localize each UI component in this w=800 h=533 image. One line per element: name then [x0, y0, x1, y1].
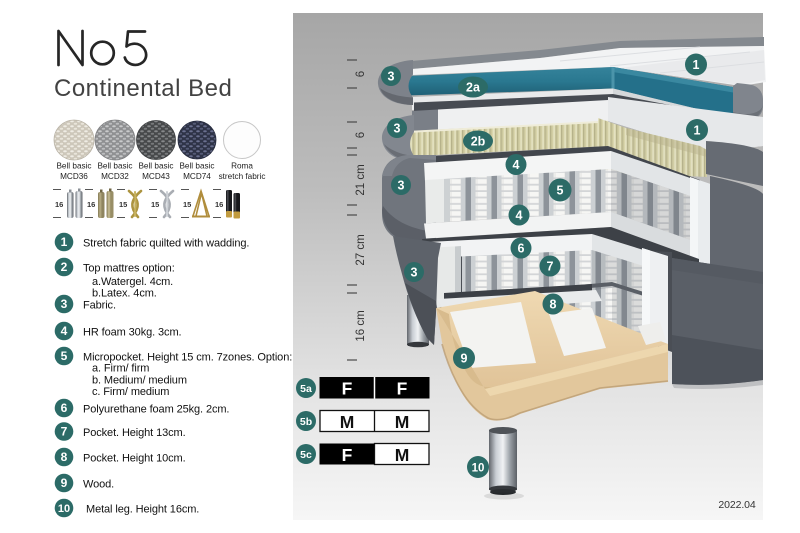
svg-text:2: 2 [61, 260, 68, 274]
svg-text:a.Watergel. 4cm.: a.Watergel. 4cm. [92, 276, 173, 288]
svg-text:5c: 5c [300, 449, 312, 461]
svg-text:5: 5 [61, 349, 68, 363]
svg-text:5b: 5b [300, 416, 312, 428]
svg-text:6: 6 [355, 132, 367, 138]
svg-text:2b: 2b [471, 135, 486, 149]
svg-text:1: 1 [694, 124, 701, 138]
svg-text:1: 1 [61, 235, 68, 249]
svg-text:M: M [340, 412, 355, 432]
svg-text:3: 3 [388, 70, 395, 84]
svg-text:Fabric.: Fabric. [83, 300, 116, 312]
svg-text:Bell basic: Bell basic [97, 162, 132, 171]
svg-text:7: 7 [547, 260, 554, 274]
svg-text:16: 16 [87, 200, 95, 209]
svg-text:F: F [342, 445, 353, 465]
svg-text:HR foam 30kg. 3cm.: HR foam 30kg. 3cm. [83, 327, 182, 339]
svg-text:7: 7 [61, 425, 68, 439]
svg-text:stretch fabric: stretch fabric [219, 172, 266, 181]
svg-text:21 cm: 21 cm [355, 164, 367, 195]
svg-text:Top mattres option:: Top mattres option: [83, 263, 175, 275]
svg-text:27 cm: 27 cm [355, 234, 367, 265]
svg-text:MCD74: MCD74 [183, 172, 211, 181]
svg-text:15: 15 [119, 200, 127, 209]
svg-text:a. Firm/ firm: a. Firm/ firm [92, 363, 149, 375]
svg-text:b. Medium/ medium: b. Medium/ medium [92, 375, 187, 387]
svg-text:MCD32: MCD32 [101, 172, 129, 181]
svg-text:M: M [395, 445, 410, 465]
svg-text:2a: 2a [466, 81, 481, 95]
svg-text:10: 10 [58, 503, 70, 515]
svg-text:3: 3 [61, 297, 68, 311]
svg-text:3: 3 [398, 179, 405, 193]
svg-text:Metal leg. Height 16cm.: Metal leg. Height 16cm. [86, 504, 199, 516]
svg-text:15: 15 [151, 200, 159, 209]
svg-text:15: 15 [183, 200, 191, 209]
svg-text:3: 3 [411, 266, 418, 280]
svg-text:2022.04: 2022.04 [718, 499, 756, 511]
svg-text:Polyurethane foam 25kg. 2cm.: Polyurethane foam 25kg. 2cm. [83, 404, 229, 416]
svg-text:F: F [342, 379, 353, 399]
svg-text:M: M [395, 412, 410, 432]
svg-text:b.Latex. 4cm.: b.Latex. 4cm. [92, 288, 157, 300]
svg-text:Pocket. Height 10cm.: Pocket. Height 10cm. [83, 453, 186, 465]
svg-text:6: 6 [355, 71, 367, 77]
svg-text:MCD43: MCD43 [142, 172, 170, 181]
svg-text:16: 16 [215, 200, 223, 209]
svg-text:16: 16 [55, 200, 63, 209]
svg-text:Roma: Roma [231, 162, 253, 171]
svg-text:5: 5 [557, 184, 564, 198]
svg-text:c. Firm/ medium: c. Firm/ medium [92, 386, 169, 398]
svg-text:4: 4 [61, 324, 68, 338]
svg-text:Stretch fabric quilted with wa: Stretch fabric quilted with wadding. [83, 238, 249, 250]
svg-text:6: 6 [61, 401, 68, 415]
svg-text:MCD36: MCD36 [60, 172, 88, 181]
svg-text:8: 8 [61, 450, 68, 464]
svg-text:Pocket. Height 13cm.: Pocket. Height 13cm. [83, 427, 186, 439]
svg-text:10: 10 [472, 463, 485, 475]
svg-text:Wood.: Wood. [83, 479, 114, 491]
svg-text:1: 1 [693, 58, 700, 72]
svg-text:16 cm: 16 cm [355, 310, 367, 341]
svg-text:4: 4 [513, 158, 520, 172]
svg-text:3: 3 [394, 122, 401, 136]
svg-text:Continental Bed: Continental Bed [54, 75, 232, 102]
svg-text:Bell basic: Bell basic [56, 162, 91, 171]
svg-text:9: 9 [61, 476, 68, 490]
svg-text:Bell basic: Bell basic [179, 162, 214, 171]
svg-text:Bell basic: Bell basic [138, 162, 173, 171]
svg-text:8: 8 [550, 298, 557, 312]
svg-text:5a: 5a [300, 383, 312, 395]
svg-text:6: 6 [518, 242, 525, 256]
svg-text:9: 9 [461, 352, 468, 366]
svg-text:4: 4 [516, 209, 523, 223]
svg-text:F: F [397, 379, 408, 399]
